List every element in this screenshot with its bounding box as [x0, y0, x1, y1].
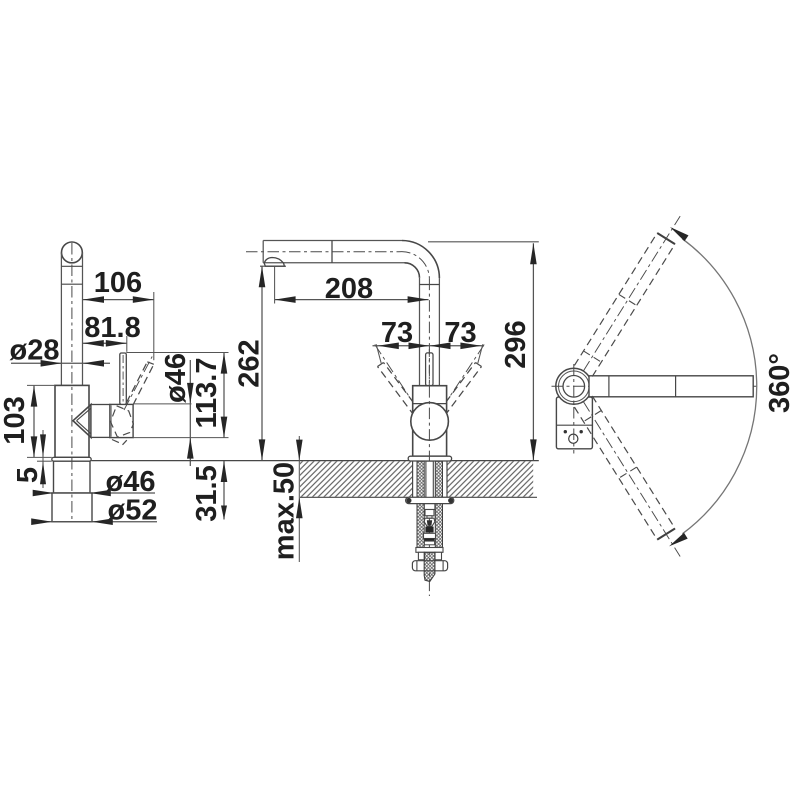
svg-text:262: 262: [234, 339, 266, 387]
svg-text:106: 106: [94, 267, 142, 299]
svg-text:113.7: 113.7: [191, 358, 223, 429]
svg-text:ø28: ø28: [10, 334, 60, 366]
svg-text:max.50: max.50: [268, 462, 300, 560]
svg-text:31.5: 31.5: [191, 465, 223, 521]
svg-text:296: 296: [500, 320, 532, 368]
svg-text:ø46: ø46: [160, 353, 192, 403]
svg-text:5: 5: [12, 467, 44, 483]
svg-text:81.8: 81.8: [84, 312, 140, 344]
svg-text:103: 103: [0, 396, 31, 444]
svg-text:360°: 360°: [764, 353, 796, 413]
